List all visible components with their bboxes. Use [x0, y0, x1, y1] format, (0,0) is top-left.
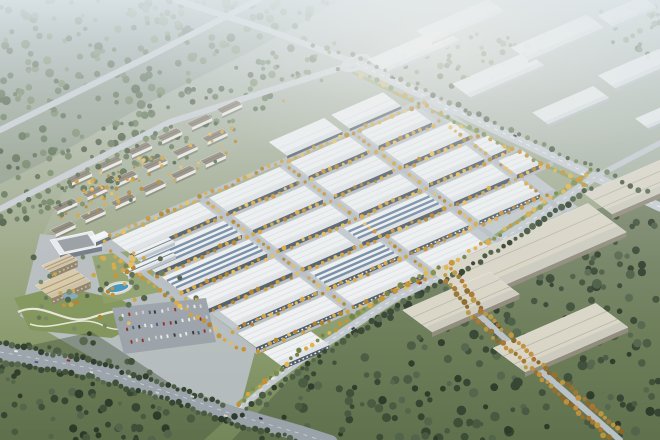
- atmosphere-haze-layer: [0, 0, 660, 440]
- aerial-render: [0, 0, 660, 440]
- aerial-rendering-canvas: [0, 0, 660, 440]
